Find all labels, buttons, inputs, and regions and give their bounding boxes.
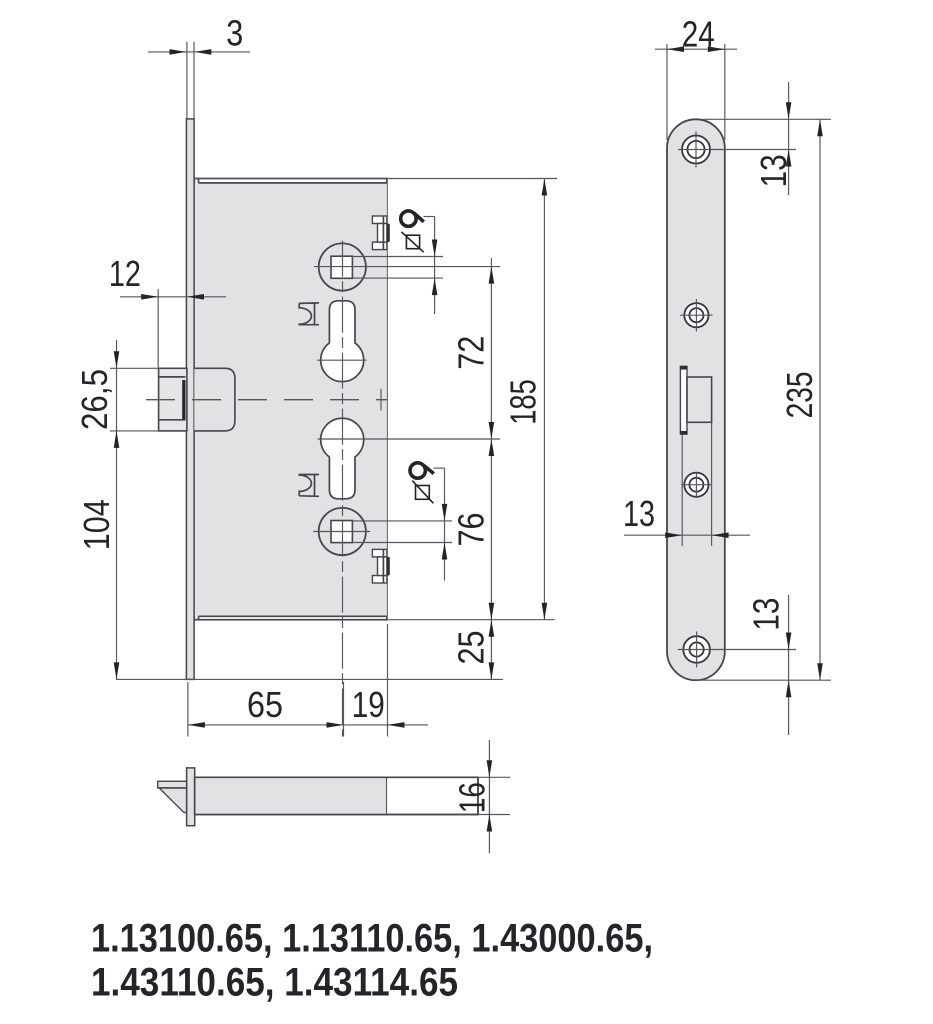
svg-text:1.43110.65, 1.43114.65: 1.43110.65, 1.43114.65	[91, 961, 458, 1005]
svg-text:13: 13	[623, 493, 655, 534]
svg-text:76: 76	[451, 513, 492, 547]
svg-text:26,5: 26,5	[74, 369, 115, 430]
svg-text:16: 16	[452, 782, 493, 813]
svg-text:3: 3	[226, 13, 243, 54]
svg-text:72: 72	[451, 336, 492, 370]
svg-text:12: 12	[109, 253, 141, 294]
svg-text:25: 25	[451, 631, 492, 665]
svg-text:19: 19	[352, 684, 385, 725]
svg-text:65: 65	[247, 684, 283, 725]
svg-text:235: 235	[779, 371, 820, 418]
svg-text:1.13100.65, 1.13110.65, 1.4300: 1.13100.65, 1.13110.65, 1.43000.65,	[91, 917, 653, 961]
svg-text:13: 13	[753, 154, 794, 187]
svg-text:13: 13	[746, 598, 787, 631]
svg-text:104: 104	[76, 499, 117, 550]
svg-text:24: 24	[682, 14, 715, 55]
svg-text:185: 185	[502, 379, 543, 425]
